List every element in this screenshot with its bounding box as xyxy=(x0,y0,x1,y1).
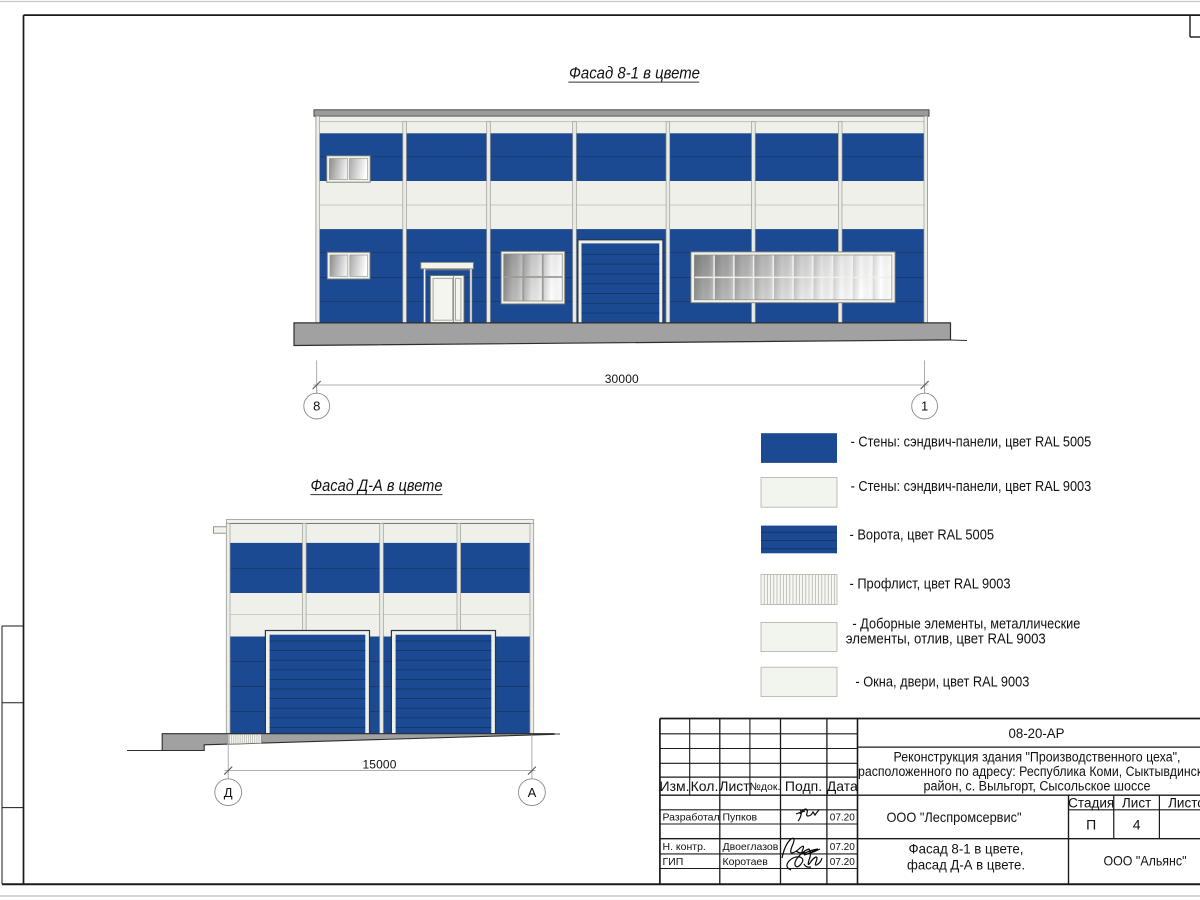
svg-text:А: А xyxy=(528,785,537,800)
svg-text:Листов: Листов xyxy=(1168,795,1200,810)
svg-text:1: 1 xyxy=(921,399,928,414)
svg-text:08-20-АР: 08-20-АР xyxy=(1009,726,1065,741)
svg-text:Коротаев: Коротаев xyxy=(723,856,769,868)
svg-text:Изм.: Изм. xyxy=(660,778,690,794)
svg-text:30000: 30000 xyxy=(605,372,639,386)
svg-text:Стадия: Стадия xyxy=(1068,795,1114,810)
svg-text:- Профлист, цвет RAL 9003: - Профлист, цвет RAL 9003 xyxy=(850,577,1011,593)
svg-text:ООО "Леспромсервис": ООО "Леспромсервис" xyxy=(887,809,1022,825)
svg-text:Дата: Дата xyxy=(827,778,858,794)
svg-text:Двоеглазов: Двоеглазов xyxy=(723,841,779,853)
svg-text:ООО "Альянс": ООО "Альянс" xyxy=(1104,853,1187,869)
svg-text:- Стены: сэндвич-панели, цвет: - Стены: сэндвич-панели, цвет RAL 5005 xyxy=(851,435,1092,451)
svg-text:Фасад 8-1 в цвете,: Фасад 8-1 в цвете, xyxy=(909,841,1024,857)
svg-text:Подп.: Подп. xyxy=(785,778,822,794)
svg-text:Д: Д xyxy=(224,785,233,800)
svg-text:- Доборные элементы, металличе: - Доборные элементы, металлические xyxy=(852,617,1080,633)
svg-text:Разработал: Разработал xyxy=(663,811,720,823)
svg-text:элементы, отлив, цвет RAL 9003: элементы, отлив, цвет RAL 9003 xyxy=(846,632,1046,648)
svg-text:Лист: Лист xyxy=(719,778,750,794)
svg-text:Фасад 8-1 в цвете: Фасад 8-1 в цвете xyxy=(569,64,700,82)
svg-text:07.20: 07.20 xyxy=(830,857,855,868)
svg-text:П: П xyxy=(1086,816,1096,832)
svg-text:расположенного по адресу: Респ: расположенного по адресу: Республика Ком… xyxy=(858,764,1200,779)
svg-text:15000: 15000 xyxy=(362,758,396,772)
svg-text:Кол.: Кол. xyxy=(691,778,719,794)
svg-text:- Стены: сэндвич-панели, цвет: - Стены: сэндвич-панели, цвет RAL 9003 xyxy=(851,479,1092,495)
svg-text:- Ворота, цвет RAL 5005: - Ворота, цвет RAL 5005 xyxy=(850,527,995,543)
svg-text:07.20: 07.20 xyxy=(830,842,855,853)
svg-text:фасад Д-А в цвете.: фасад Д-А в цвете. xyxy=(907,857,1025,873)
svg-text:Лист: Лист xyxy=(1122,795,1151,810)
svg-text:Н. контр.: Н. контр. xyxy=(663,841,706,853)
svg-text:4: 4 xyxy=(1133,816,1141,832)
svg-text:Реконструкция здания "Производ: Реконструкция здания "Производственного … xyxy=(894,749,1181,764)
svg-text:район, с. Выльгорт, Сысольское: район, с. Выльгорт, Сысольское шоссе xyxy=(924,779,1151,794)
svg-text:07.20: 07.20 xyxy=(830,812,855,823)
svg-text:ГИП: ГИП xyxy=(663,856,684,868)
svg-text:№док.: №док. xyxy=(750,781,781,793)
svg-text:Фасад Д-А в цвете: Фасад Д-А в цвете xyxy=(311,477,443,495)
svg-text:- Окна, двери, цвет RAL 9003: - Окна, двери, цвет RAL 9003 xyxy=(855,675,1029,691)
svg-text:8: 8 xyxy=(313,399,320,414)
svg-text:Пупков: Пупков xyxy=(723,811,758,823)
